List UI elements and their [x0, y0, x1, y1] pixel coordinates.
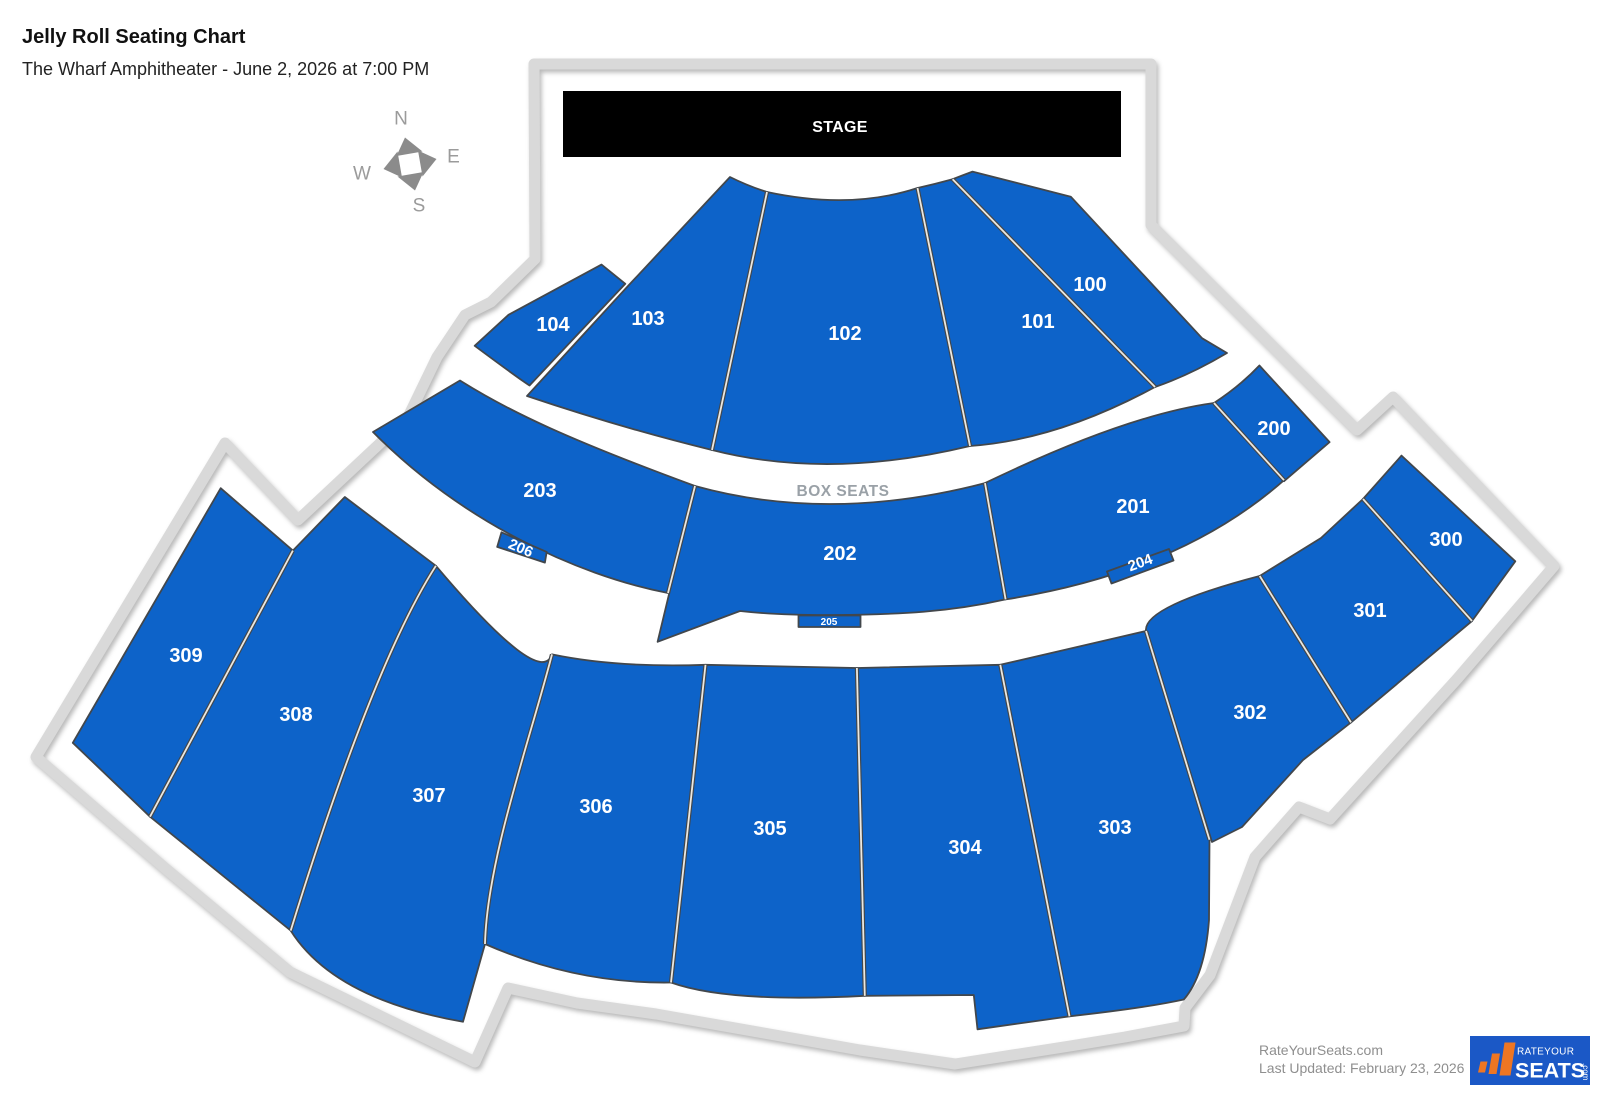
- svg-text:STAGE: STAGE: [812, 119, 867, 136]
- svg-text:101: 101: [1021, 311, 1054, 333]
- svg-text:302: 302: [1233, 702, 1266, 724]
- svg-text:104: 104: [536, 314, 570, 336]
- svg-text:RateYourSeats.com: RateYourSeats.com: [1259, 1042, 1383, 1058]
- svg-text:202: 202: [823, 543, 856, 565]
- svg-text:Last Updated: February 23, 202: Last Updated: February 23, 2026: [1259, 1060, 1465, 1076]
- svg-text:305: 305: [753, 818, 786, 840]
- svg-text:307: 307: [412, 785, 445, 807]
- svg-text:The Wharf Amphitheater - June: The Wharf Amphitheater - June 2, 2026 at…: [22, 59, 429, 79]
- svg-text:303: 303: [1098, 817, 1131, 839]
- svg-text:201: 201: [1116, 496, 1149, 518]
- svg-text:Jelly Roll Seating Chart: Jelly Roll Seating Chart: [22, 26, 246, 48]
- svg-text:103: 103: [631, 308, 664, 330]
- svg-text:E: E: [447, 147, 460, 168]
- svg-text:304: 304: [948, 837, 982, 859]
- svg-text:RATEYOUR: RATEYOUR: [1517, 1047, 1574, 1058]
- svg-text:W: W: [353, 164, 371, 185]
- svg-text:309: 309: [169, 645, 202, 667]
- svg-text:102: 102: [828, 323, 861, 345]
- svg-text:N: N: [394, 109, 408, 130]
- svg-text:SEATS: SEATS: [1515, 1059, 1585, 1083]
- svg-text:S: S: [413, 196, 426, 217]
- svg-text:205: 205: [821, 617, 838, 628]
- svg-text:BOX SEATS: BOX SEATS: [797, 483, 890, 500]
- svg-text:100: 100: [1073, 274, 1106, 296]
- svg-text:300: 300: [1429, 529, 1462, 551]
- svg-text:.com: .com: [1581, 1063, 1590, 1081]
- svg-text:200: 200: [1257, 418, 1290, 440]
- svg-text:306: 306: [579, 796, 612, 818]
- svg-text:308: 308: [279, 704, 312, 726]
- svg-text:301: 301: [1353, 600, 1386, 622]
- svg-text:203: 203: [523, 480, 556, 502]
